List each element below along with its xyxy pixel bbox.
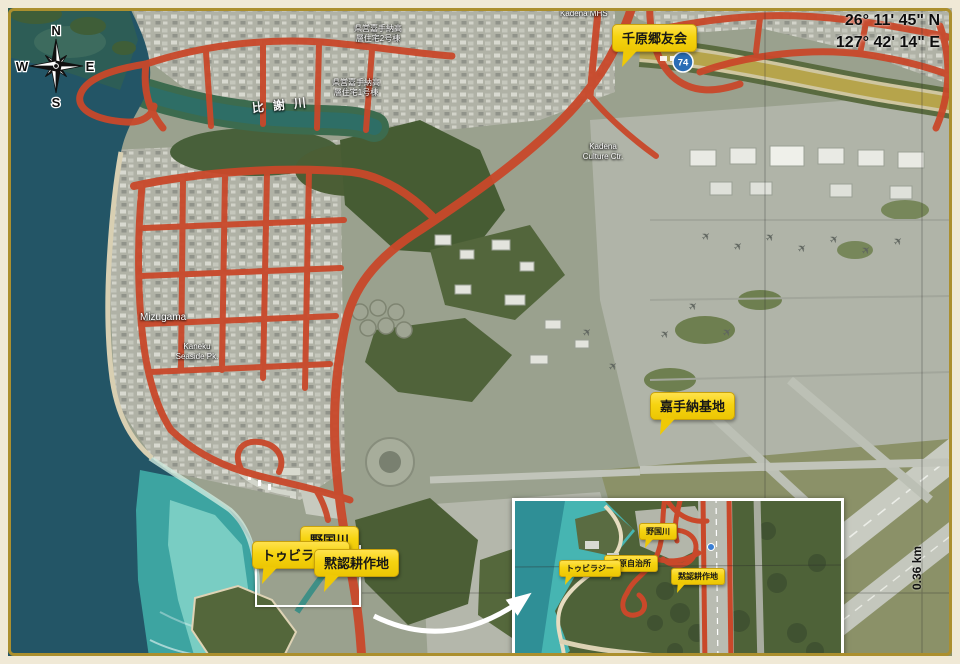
compass-west-label: W [16, 59, 29, 74]
inset-pin-mokunin-kousakuchi: 黙認耕作地 [671, 568, 725, 585]
compass-rose: N W E S [14, 22, 98, 114]
route-number: 74 [678, 58, 689, 69]
pin-chihara-gouyuukai[interactable]: 千原郷友会 [612, 24, 697, 52]
pin-kadena-kichi[interactable]: 嘉手納基地 [650, 392, 735, 420]
district-label: Mizugama [140, 312, 186, 325]
latitude-value: 26° 11' 45" N [836, 10, 940, 32]
housing-label: 県営嘉手納高層住宅2号棟 [352, 24, 404, 44]
inset-detail-view: 野国川 千原自治所 トゥビラジー 黙認耕作地 [512, 498, 844, 660]
inset-pin-tubiraji: トゥビラジー [559, 560, 621, 577]
compass-north-label: N [51, 23, 60, 38]
pin-mokunin-kousakuchi[interactable]: 黙認耕作地 [314, 549, 399, 577]
inset-pin-nogunigawa: 野国川 [639, 523, 677, 540]
culture-center-label: Kadena Culture Ctr. [578, 142, 628, 162]
compass-south-label: S [52, 95, 61, 110]
park-label: Kaneku Seaside Pk. [168, 342, 226, 362]
housing-label: 県営嘉手納高層住宅1号棟 [330, 78, 382, 98]
school-label: Kadena MHS [560, 9, 608, 19]
scale-label: 0.36 km [910, 576, 960, 590]
satellite-map: ✈ ✈ ✈ ✈ ✈ ✈ ✈ ✈ ✈ ✈ ✈ ✈ [0, 0, 960, 664]
compass-east-label: E [86, 59, 95, 74]
coordinates-readout: 26° 11' 45" N 127° 42' 14" E [836, 10, 940, 53]
longitude-value: 127° 42' 14" E [836, 32, 940, 54]
